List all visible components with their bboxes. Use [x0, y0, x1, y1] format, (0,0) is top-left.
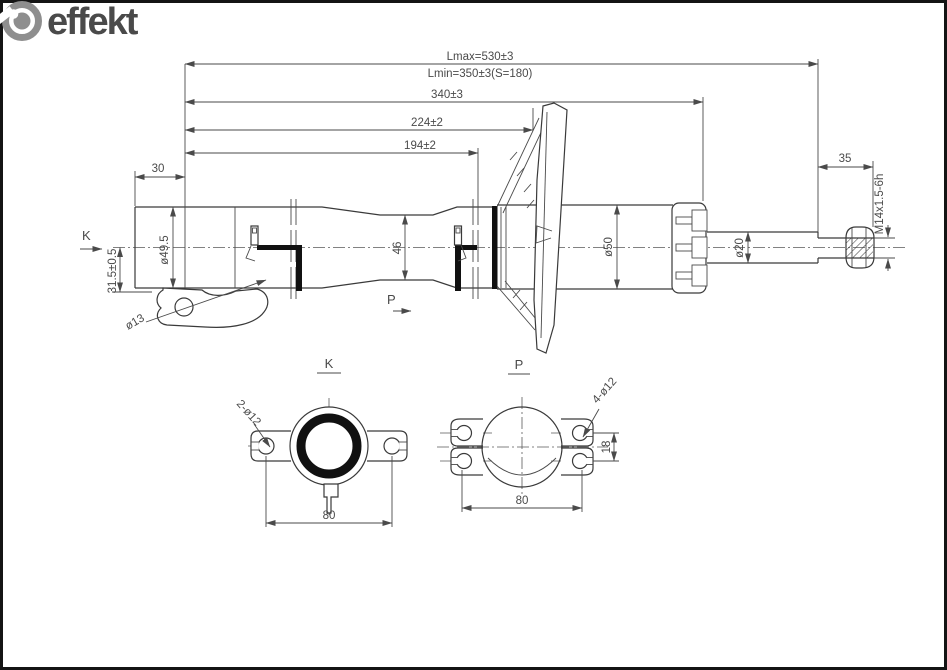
- dim-dia13-label: ø13: [124, 312, 147, 332]
- dim-dia50-label: ø50: [603, 237, 615, 257]
- drawing-sheet: effekt: [0, 0, 947, 670]
- section-p-title: P: [515, 357, 524, 372]
- dim-dia20-label: ø20: [734, 238, 746, 258]
- k-width-label: 80: [323, 510, 336, 522]
- wrench-ring-icon: [0, 5, 39, 38]
- main-view: ø13: [80, 51, 908, 353]
- section-view-p: P 4-ø12: [437, 357, 619, 512]
- extension-lines: [112, 59, 895, 292]
- p-holes-label: 4-ø12: [590, 376, 619, 406]
- p-spacing-label: 18: [601, 441, 613, 454]
- dim-194-label: 194±2: [404, 140, 436, 152]
- piston-rod: [707, 227, 874, 268]
- dim-224-label: 224±2: [411, 117, 443, 129]
- p-clamp: [455, 199, 479, 299]
- seat-hatch-marks: [510, 152, 534, 310]
- dim-thread-label: M14x1.5-6h: [874, 174, 886, 235]
- spring-seat-assembly: [492, 103, 673, 353]
- dim-46-label: 46: [392, 242, 404, 255]
- dim-lmin-label: Lmin=350±3(S=180): [428, 68, 533, 80]
- lock-nut: [846, 227, 874, 268]
- section-view-k: K 2-ø12 80: [234, 356, 408, 527]
- section-k-title: K: [325, 356, 334, 371]
- k-bottom-tab: [324, 484, 338, 513]
- seat-gasket: [492, 206, 498, 289]
- p-width-label: 80: [516, 495, 529, 507]
- k-holes-label: 2-ø12: [234, 398, 263, 428]
- view-k-marker: K: [82, 228, 91, 243]
- spring-seat-plate: [534, 103, 567, 353]
- dim-340-label: 340±3: [431, 89, 463, 101]
- brand-name: effekt: [47, 1, 139, 43]
- p-clamp-ear: [455, 226, 462, 245]
- dim-lmax-label: Lmax=530±3: [447, 51, 514, 63]
- logo: effekt: [0, 1, 139, 43]
- dim-30-label: 30: [152, 163, 165, 175]
- bracket-eye-hole: [175, 298, 193, 316]
- k-rubber-ring: [301, 418, 357, 474]
- technical-drawing: effekt: [0, 0, 947, 670]
- strut-cap: [672, 203, 707, 293]
- dim-35-label: 35: [839, 153, 852, 165]
- dim-dia49-label: ø49.5: [159, 235, 171, 264]
- dim-31-5-label: 31.5±0.5: [107, 249, 119, 294]
- view-p-marker: P: [387, 292, 396, 307]
